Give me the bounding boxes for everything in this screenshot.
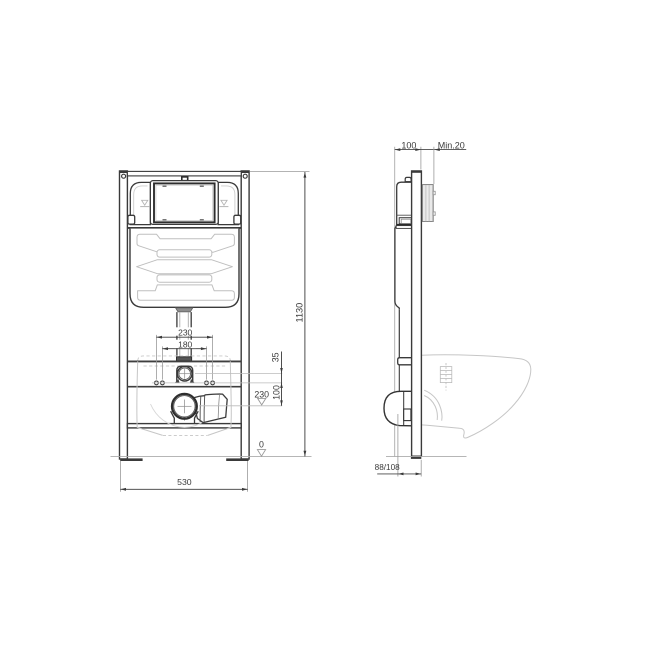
svg-text:230: 230 xyxy=(254,389,269,399)
svg-text:1130: 1130 xyxy=(295,303,305,323)
svg-text:88/108: 88/108 xyxy=(375,463,400,472)
svg-text:180: 180 xyxy=(178,339,192,349)
svg-text:0: 0 xyxy=(259,440,264,450)
svg-text:230: 230 xyxy=(178,328,192,338)
svg-text:100: 100 xyxy=(271,385,281,400)
svg-text:Min.20: Min.20 xyxy=(438,141,465,151)
svg-text:100: 100 xyxy=(401,141,416,151)
svg-text:35: 35 xyxy=(271,352,281,362)
svg-text:530: 530 xyxy=(177,477,192,487)
